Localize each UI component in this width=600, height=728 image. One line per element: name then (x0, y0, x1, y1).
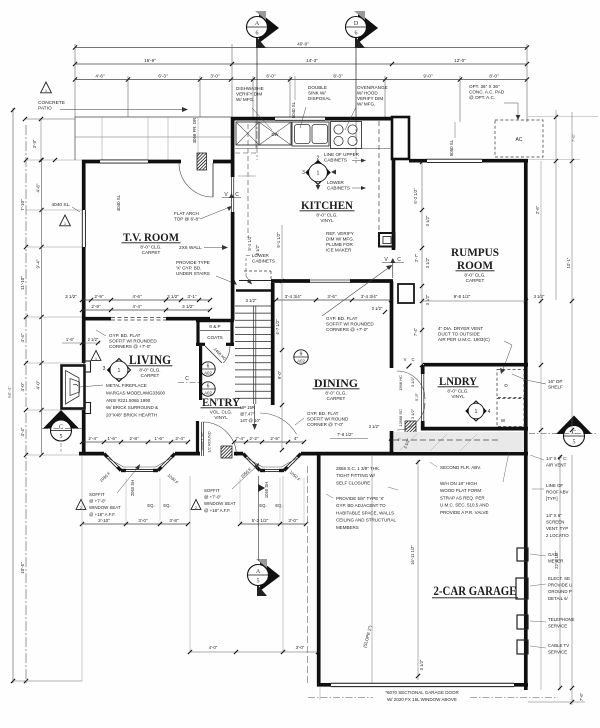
svg-text:SERVICE: SERVICE (548, 624, 567, 629)
svg-text:WINDOW SEAT: WINDOW SEAT (204, 501, 236, 506)
svg-text:C: C (59, 425, 63, 431)
svg-text:VINYL: VINYL (451, 394, 465, 399)
svg-text:OPT. 36" X 36": OPT. 36" X 36" (469, 84, 500, 89)
svg-text:CORNER @ 7'-0": CORNER @ 7'-0" (307, 422, 344, 427)
svg-text:PROVIDE TYPE: PROVIDE TYPE (176, 260, 210, 265)
svg-text:T.V. ROOM: T.V. ROOM (123, 230, 179, 244)
svg-text:CABINETS: CABINETS (252, 258, 275, 263)
svg-text:2'-4": 2'-4" (175, 436, 185, 441)
svg-text:3'-0": 3'-0" (210, 74, 220, 79)
svg-text:7'-8 1/2": 7'-8 1/2" (337, 432, 354, 437)
svg-text:A02: A02 (204, 371, 212, 376)
svg-text:2 LOCATIO: 2 LOCATIO (546, 533, 569, 538)
svg-text:8'-0" CLG.: 8'-0" CLG. (325, 391, 346, 396)
svg-text:6 & P: 6 & P (209, 324, 220, 329)
svg-text:PROVIDE A P.R. VALVE: PROVIDE A P.R. VALVE (440, 510, 489, 515)
svg-text:8'-0": 8'-0" (489, 74, 499, 79)
svg-text:14" X 6": 14" X 6" (546, 513, 562, 518)
svg-text:PATIO: PATIO (38, 106, 52, 112)
svg-text:SINK W/: SINK W/ (308, 90, 326, 95)
svg-text:SOFFIT: SOFFIT (89, 492, 105, 497)
svg-text:8'-0" CLG.: 8'-0" CLG. (464, 273, 485, 278)
svg-text:GYP. BD. FLAT: GYP. BD. FLAT (109, 333, 141, 338)
svg-text:3 1/2": 3 1/2" (255, 244, 260, 255)
svg-text:2'-5": 2'-5" (270, 436, 280, 441)
svg-text:ELECT. SE: ELECT. SE (548, 576, 570, 581)
svg-text:10'-1": 10'-1" (566, 257, 571, 268)
svg-text:CARPET: CARPET (141, 373, 160, 378)
svg-text:MEMBERS: MEMBERS (336, 525, 359, 530)
svg-text:TOP @ 6'-8": TOP @ 6'-8" (174, 216, 200, 221)
svg-text:SCREEN: SCREEN (546, 520, 564, 525)
svg-text:3 1/2": 3 1/2" (425, 215, 430, 226)
svg-text:DUCT TO OUTSIDE: DUCT TO OUTSIDE (438, 331, 480, 336)
svg-text:GROUND P: GROUND P (548, 589, 572, 594)
svg-text:CONCRETE: CONCRETE (38, 100, 65, 106)
svg-text:2'-7": 2'-7" (414, 253, 419, 262)
svg-text:16" DP: 16" DP (548, 379, 562, 384)
svg-text:LIVING: LIVING (129, 353, 171, 367)
svg-text:DIM W/ MFG.: DIM W/ MFG. (326, 236, 354, 241)
svg-text:3068 FR. DR.: 3068 FR. DR. (192, 117, 197, 144)
svg-text:14'-3": 14'-3" (306, 58, 318, 63)
svg-text:7'-10": 7'-10" (20, 199, 25, 211)
svg-text:CONC. A.C. PAD: CONC. A.C. PAD (469, 89, 505, 94)
svg-text:OVEN/RANGE: OVEN/RANGE (357, 85, 388, 90)
svg-text:STRAP AS REQ. PER: STRAP AS REQ. PER (440, 495, 485, 500)
svg-text:2'-6": 2'-6" (535, 205, 540, 214)
svg-text:@ +18" A.F.F.: @ +18" A.F.F. (89, 512, 116, 517)
svg-text:6: 6 (207, 363, 210, 369)
svg-text:ROOF ABV: ROOF ABV (546, 490, 569, 495)
svg-text:5'-5": 5'-5" (414, 392, 419, 401)
svg-text:4" DIA. DRYER VENT: 4" DIA. DRYER VENT (438, 326, 483, 331)
svg-text:DISHWASHE: DISHWASHE (236, 86, 264, 91)
svg-text:CARPET: CARPET (142, 250, 161, 255)
svg-text:5040 SL: 5040 SL (291, 101, 296, 118)
svg-text:CORNERS @ +7'-0": CORNERS @ +7'-0" (326, 327, 368, 332)
svg-text:LNDRY: LNDRY (439, 376, 478, 388)
svg-text:3 1/2": 3 1/2" (246, 298, 257, 303)
svg-text:MARGAS MODEL#MG33600: MARGAS MODEL#MG33600 (106, 390, 166, 395)
svg-text:1: 1 (45, 89, 47, 93)
svg-text:SOFFIT: SOFFIT (204, 488, 220, 493)
svg-text:D: D (354, 21, 359, 27)
svg-text:9'-0": 9'-0" (423, 74, 433, 79)
svg-text:5050 SL: 5050 SL (449, 139, 454, 156)
svg-text:@ +7'-0": @ +7'-0" (89, 499, 106, 504)
svg-text:DINING: DINING (314, 376, 358, 390)
svg-text:3'-9": 3'-9" (32, 139, 37, 148)
svg-text:SERVICE: SERVICE (548, 650, 567, 655)
svg-text:HABITABLE SPACE, WALLS: HABITABLE SPACE, WALLS (336, 510, 394, 515)
svg-text:GYP. BD ADJACENT TO: GYP. BD ADJACENT TO (336, 503, 386, 508)
svg-text:2'-4": 2'-4" (88, 436, 98, 441)
svg-text:3 1/2": 3 1/2" (534, 294, 545, 299)
svg-text:EQ.: EQ. (147, 503, 154, 508)
svg-text:PROVIDE 5/8" TYPE 'X': PROVIDE 5/8" TYPE 'X' (336, 496, 384, 501)
svg-text:11'-10": 11'-10" (20, 276, 25, 290)
svg-text:3 1/2": 3 1/2" (410, 408, 415, 419)
svg-text:2'-8": 2'-8" (129, 436, 139, 441)
svg-text:SELF CLOSURE: SELF CLOSURE (336, 480, 370, 485)
svg-text:W: W (501, 418, 506, 423)
svg-text:CABINETS: CABINETS (327, 185, 350, 190)
svg-text:3'-6": 3'-6" (327, 294, 337, 299)
svg-text:C: C (572, 430, 576, 436)
svg-text:KITCHEN: KITCHEN (301, 198, 353, 212)
svg-text:'X' GYP. BD.: 'X' GYP. BD. (176, 265, 201, 270)
svg-text:2: 2 (317, 156, 320, 162)
svg-text:PROVIDE U: PROVIDE U (548, 583, 572, 588)
svg-text:6'-2 1/2": 6'-2 1/2" (413, 188, 418, 204)
svg-text:A: A (256, 569, 261, 575)
svg-text:GAS: GAS (548, 552, 557, 557)
svg-text:VINYL: VINYL (320, 218, 334, 223)
svg-text:4'-6": 4'-6" (36, 183, 41, 192)
svg-text:4": 4" (397, 437, 401, 442)
svg-text:CEILING AND STRUCTURAL: CEILING AND STRUCTURAL (336, 518, 397, 523)
svg-text:8'-0" CLG.: 8'-0" CLG. (139, 368, 160, 373)
svg-text:2: 2 (195, 506, 197, 510)
svg-text:50'-4": 50'-4" (7, 386, 12, 398)
svg-text:SOFFIT W/ ROUNDED: SOFFIT W/ ROUNDED (109, 338, 157, 343)
svg-text:3'-1": 3'-1" (187, 294, 197, 299)
svg-text:PLUMB FOR: PLUMB FOR (326, 242, 353, 247)
svg-text:1: 1 (317, 171, 320, 177)
svg-text:5'-1 1/2": 5'-1 1/2" (276, 232, 281, 248)
svg-text:UNDER STAIRS: UNDER STAIRS (176, 271, 210, 276)
svg-text:C: C (185, 376, 189, 382)
svg-text:W/H ON 18" HIGH: W/H ON 18" HIGH (440, 481, 477, 486)
svg-text:WINDOW SEAT: WINDOW SEAT (89, 505, 121, 510)
svg-text:15'-9": 15'-9" (144, 58, 156, 63)
svg-text:VENT. TYP: VENT. TYP (546, 526, 568, 531)
svg-text:SOFFIT W/ ROUNDED: SOFFIT W/ ROUNDED (326, 321, 374, 326)
svg-text:LOWER: LOWER (327, 180, 345, 185)
svg-text:20"X48" BRICK HEARTH: 20"X48" BRICK HEARTH (106, 413, 157, 418)
svg-text:12868 SC: 12868 SC (398, 409, 403, 427)
svg-text:W/ BRICK SURROUND &: W/ BRICK SURROUND & (106, 405, 158, 410)
svg-text:3 1/2": 3 1/2" (419, 659, 424, 670)
svg-text:FLAT ARCH: FLAT ARCH (174, 211, 199, 216)
svg-text:2 1/2": 2 1/2" (88, 337, 99, 342)
svg-text:3 1/2": 3 1/2" (182, 304, 194, 309)
svg-text:9'-4": 9'-4" (36, 259, 41, 268)
svg-text:5'-1 1/2": 5'-1 1/2" (247, 235, 252, 251)
svg-text:2-CAR GARAGE: 2-CAR GARAGE (434, 584, 517, 598)
svg-text:CARPET: CARPET (466, 278, 485, 283)
svg-text:2868 S.C. 1 3/8" THK.: 2868 S.C. 1 3/8" THK. (336, 466, 380, 471)
svg-text:4: 4 (488, 409, 491, 415)
svg-text:2'-9": 2'-9" (94, 294, 104, 299)
svg-text:6'-0": 6'-0" (266, 74, 276, 79)
svg-text:TIGHT FITTING W/: TIGHT FITTING W/ (336, 473, 376, 478)
svg-text:3'-10": 3'-10" (98, 518, 110, 523)
svg-text:14" X 6" C:: 14" X 6" C: (546, 456, 567, 461)
svg-text:C: C (235, 192, 239, 198)
svg-text:3 1/2": 3 1/2" (65, 294, 77, 299)
svg-text:EQ.: EQ. (163, 503, 170, 508)
svg-text:4'-4": 4'-4" (20, 427, 25, 436)
svg-text:C: C (411, 357, 414, 362)
svg-text:4'-6": 4'-6" (95, 74, 105, 79)
svg-text:U.M.C. SEC. 510.5 AND: U.M.C. SEC. 510.5 AND (440, 503, 490, 508)
svg-text:3'-0": 3'-0" (138, 518, 148, 523)
svg-text:2: 2 (80, 506, 82, 510)
svg-text:3 1/2": 3 1/2" (372, 306, 383, 311)
svg-text:ANSI #221.506b 1990: ANSI #221.506b 1990 (106, 398, 151, 403)
svg-text:8'-3": 8'-3" (333, 74, 343, 79)
svg-text:ROOM: ROOM (457, 258, 493, 272)
svg-text:ENTRY: ENTRY (202, 395, 240, 409)
svg-text:3 1/2": 3 1/2" (425, 257, 430, 268)
svg-text:6'-3": 6'-3" (158, 74, 168, 79)
svg-text:CORNERS @ +7'-0": CORNERS @ +7'-0" (109, 344, 151, 349)
svg-text:7'-6": 7'-6" (579, 692, 584, 701)
svg-text:1: 1 (64, 222, 66, 226)
svg-text:2X6 WALL: 2X6 WALL (179, 245, 202, 251)
svg-text:AC: AC (516, 137, 523, 143)
svg-text:AIR PER U.M.C. 1903(C): AIR PER U.M.C. 1903(C) (438, 337, 490, 342)
svg-text:3'-4 3/4": 3'-4 3/4" (361, 294, 378, 299)
svg-text:8'-0" CLG.: 8'-0" CLG. (140, 245, 161, 250)
svg-text:3068 1 SC: 3068 1 SC (200, 431, 205, 450)
svg-text:W/ MFG.: W/ MFG. (357, 101, 375, 106)
svg-text:SHELF: SHELF (548, 384, 563, 389)
svg-text:2'-9": 2'-9" (91, 304, 101, 309)
svg-text:[TYP.]: [TYP.] (546, 496, 558, 501)
svg-text:GYP. BD. FLAT: GYP. BD. FLAT (307, 411, 339, 416)
svg-text:A02: A02 (204, 391, 212, 396)
svg-text:2060 SH: 2060 SH (130, 480, 135, 496)
svg-text:W/ 2020 FX 15L WINDOW ABOVE: W/ 2020 FX 15L WINDOW ABOVE (387, 697, 457, 702)
svg-text:9'-8 1/2": 9'-8 1/2" (454, 294, 471, 299)
svg-text:W/ MFG.: W/ MFG. (236, 97, 254, 102)
svg-text:3 1/2": 3 1/2" (167, 294, 179, 299)
svg-text:9: 9 (300, 351, 303, 357)
svg-text:AIR VENT: AIR VENT (546, 463, 567, 468)
svg-text:A: A (255, 21, 260, 27)
svg-text:4040 SL: 4040 SL (116, 194, 121, 211)
svg-text:WOOD PLAT FORM: WOOD PLAT FORM (440, 488, 481, 493)
svg-text:A02: A02 (297, 359, 305, 364)
svg-text:COATS: COATS (207, 335, 222, 340)
svg-text:5: 5 (60, 434, 63, 440)
svg-text:9'-0": 9'-0" (277, 370, 282, 379)
svg-text:DW: DW (272, 132, 279, 137)
svg-text:1'-6": 1'-6" (107, 436, 117, 441)
svg-text:4'-0": 4'-0" (20, 382, 25, 391)
svg-text:1'-6": 1'-6" (154, 436, 164, 441)
svg-text:3'-0": 3'-0" (296, 645, 305, 650)
svg-text:4'-4": 4'-4" (132, 304, 142, 309)
svg-text:1568 HC: 1568 HC (398, 375, 403, 391)
svg-text:DETAIL 6/: DETAIL 6/ (548, 596, 569, 601)
svg-text:LINE OF UPPER: LINE OF UPPER (324, 152, 360, 157)
svg-text:REF. VERIFY: REF. VERIFY (326, 231, 354, 236)
svg-text:V: V (404, 357, 407, 362)
svg-text:4040 SL.: 4040 SL. (51, 202, 70, 208)
svg-text:CARPET: CARPET (327, 396, 346, 401)
svg-text:DOUBLE: DOUBLE (308, 85, 327, 90)
svg-text:VINYL: VINYL (214, 415, 228, 420)
svg-text:@ +18" A.F.F.: @ +18" A.F.F. (204, 508, 231, 513)
svg-text:4'-4": 4'-4" (20, 333, 25, 342)
svg-text:8'-0" CLG.: 8'-0" CLG. (316, 213, 337, 218)
svg-text:VOL. CLG.: VOL. CLG. (210, 410, 232, 415)
svg-text:4'-0": 4'-0" (209, 645, 218, 650)
svg-text:UP 15R: UP 15R (240, 405, 255, 410)
svg-text:C: C (397, 257, 401, 263)
svg-text:4'-7 1/2": 4'-7 1/2" (275, 319, 280, 335)
svg-text:EQ.: EQ. (259, 503, 266, 508)
svg-text:3'-8": 3'-8" (169, 518, 179, 523)
svg-text:1: 1 (475, 409, 478, 415)
svg-text:W/ HOOD: W/ HOOD (357, 90, 378, 95)
svg-text:1'-6": 1'-6" (66, 337, 75, 342)
svg-text:12'-0": 12'-0" (454, 58, 466, 63)
svg-text:TELEPHONE: TELEPHONE (548, 617, 575, 622)
svg-text:4'-0": 4'-0" (36, 380, 41, 389)
svg-text:7'-4": 7'-4" (235, 436, 245, 441)
svg-text:3'-0": 3'-0" (288, 518, 298, 523)
svg-text:2'-2": 2'-2" (249, 436, 259, 441)
svg-text:@ +7'-0": @ +7'-0" (204, 495, 221, 500)
svg-text:5: 5 (573, 440, 576, 446)
svg-text:6: 6 (207, 383, 210, 389)
svg-text:ICE MAKER: ICE MAKER (326, 247, 352, 252)
svg-text:METER: METER (548, 559, 563, 564)
svg-text:VERIFY DIM: VERIFY DIM (236, 91, 262, 96)
svg-text:1: 1 (118, 368, 121, 374)
svg-text:3'-4 3/4": 3'-4 3/4" (285, 294, 302, 299)
svg-text:6: 6 (355, 31, 358, 37)
svg-text:14T @ 10": 14T @ 10" (240, 418, 261, 423)
svg-text:*6070 SECTIONAL GARAGE DOOR: *6070 SECTIONAL GARAGE DOOR (385, 690, 459, 695)
svg-text:3 1/2": 3 1/2" (369, 424, 380, 429)
svg-text:LINE OF: LINE OF (546, 483, 563, 488)
svg-text:3: 3 (103, 366, 106, 372)
svg-text:1/2 ROUND: 1/2 ROUND (207, 431, 212, 452)
svg-text:@ OPT. A.C.: @ OPT. A.C. (469, 95, 495, 100)
svg-text:5: 5 (257, 579, 260, 585)
svg-text:GYP. BD. FLAT: GYP. BD. FLAT (326, 316, 358, 321)
svg-text:CABINETS: CABINETS (324, 157, 347, 162)
svg-text:DISPOSAL: DISPOSAL (308, 96, 331, 101)
svg-text:8'-0" CLG.: 8'-0" CLG. (447, 389, 468, 394)
svg-text:SOFFIT W/ ROUND: SOFFIT W/ ROUND (307, 416, 349, 421)
svg-text:VERIFY DIM: VERIFY DIM (357, 96, 383, 101)
svg-text:3 1/2": 3 1/2" (425, 294, 430, 305)
svg-text:RUMPUS: RUMPUS (451, 245, 499, 259)
svg-text:3 1/2": 3 1/2" (410, 376, 415, 387)
svg-text:40'-0": 40'-0" (297, 42, 309, 47)
svg-text:SECOND FLR. ABV.: SECOND FLR. ABV. (440, 465, 481, 470)
svg-text:CABLE TV: CABLE TV (548, 643, 569, 648)
svg-text:EQ.: EQ. (275, 503, 282, 508)
svg-text:4": 4" (294, 436, 299, 441)
svg-text:6: 6 (256, 31, 259, 37)
svg-text:3: 3 (302, 170, 305, 176)
svg-text:1: 1 (95, 357, 97, 361)
svg-text:1050 SH: 1050 SH (264, 482, 269, 498)
svg-text:4'-6": 4'-6" (132, 294, 142, 299)
svg-text:16'-11 1/2": 16'-11 1/2" (410, 545, 415, 565)
svg-text:@7.47": @7.47" (240, 411, 255, 416)
svg-text:7'-4": 7'-4" (413, 327, 418, 336)
svg-text:METAL FIREPLACE: METAL FIREPLACE (106, 383, 147, 388)
svg-text:10'-5": 10'-5" (20, 562, 25, 574)
svg-text:5'-2 1/2": 5'-2 1/2" (252, 518, 269, 523)
